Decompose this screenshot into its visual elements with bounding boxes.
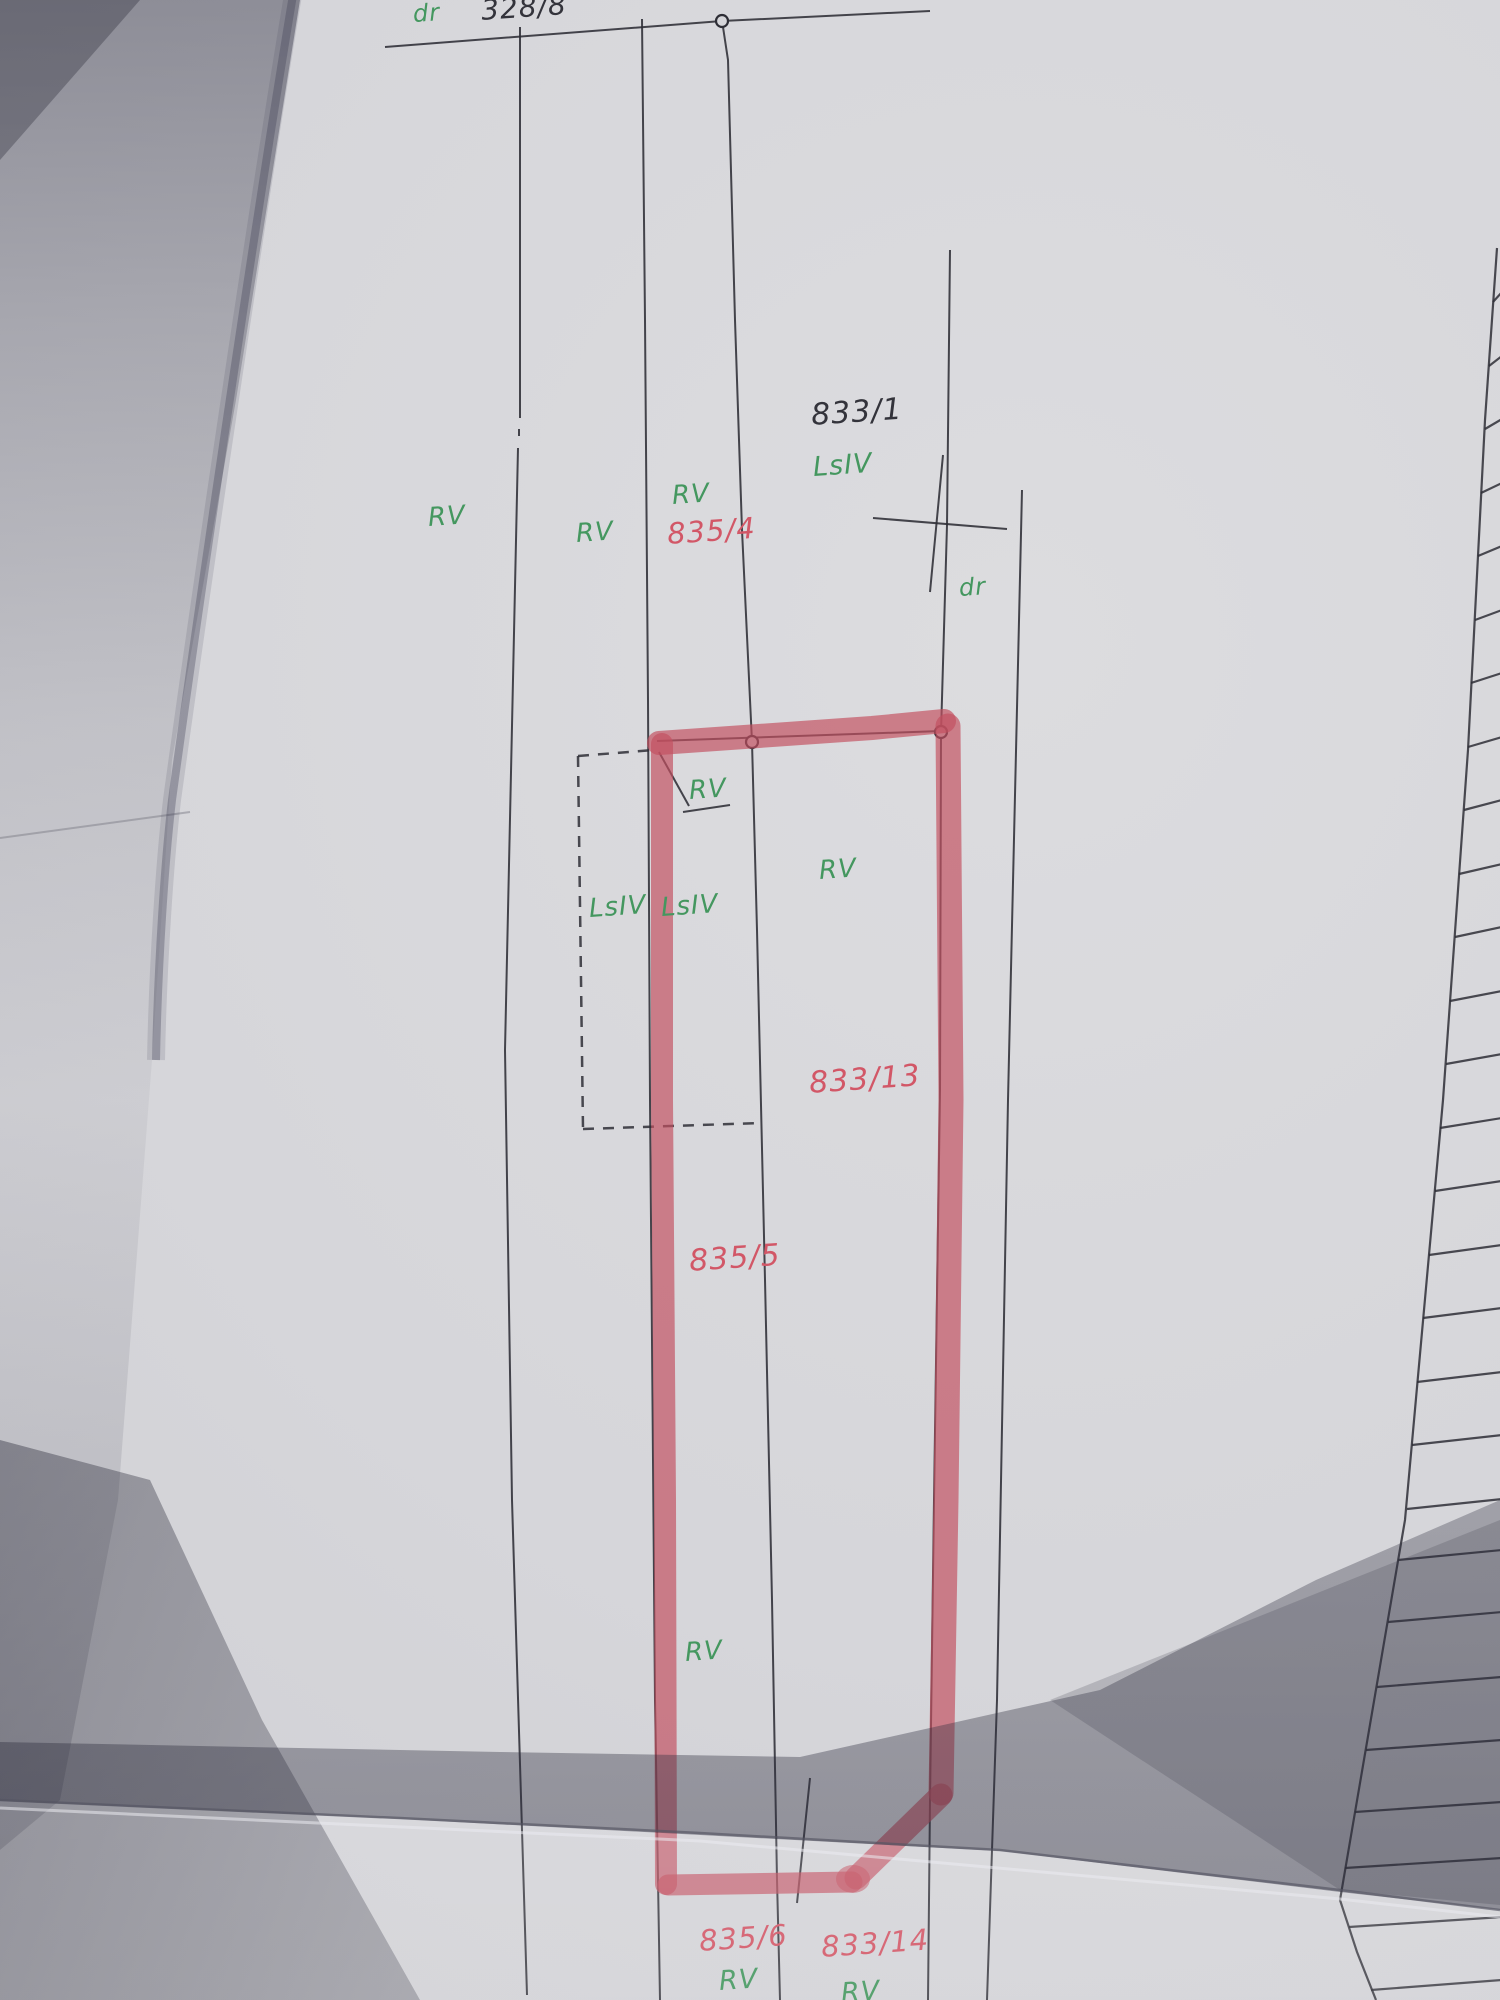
boundary-line-top xyxy=(385,11,930,47)
cast-shadow-streak xyxy=(156,0,293,1060)
ladder-rung xyxy=(1412,1435,1500,1445)
ladder-rung xyxy=(1429,1245,1500,1255)
parcel-label-833-1: 833/1 xyxy=(810,392,904,433)
parcel-boundary-lines xyxy=(505,19,1022,2000)
landuse-label-lsiv-left: LsIV xyxy=(588,890,647,924)
ladder-rung xyxy=(1459,864,1500,874)
parcel-label-833-13: 833/13 xyxy=(808,1058,922,1101)
marker-right-edge xyxy=(941,726,951,1793)
landuse-label-833-1: LsIV xyxy=(812,448,874,483)
boundary-cross-mark xyxy=(873,455,1007,592)
marker-top-edge xyxy=(659,721,944,743)
ladder-rung xyxy=(1366,1740,1500,1750)
ladder-rung xyxy=(1423,1308,1500,1318)
landuse-label-rv-mid: RV xyxy=(575,516,615,549)
dashed-boundary xyxy=(578,750,760,1129)
marker-bottom-edge xyxy=(668,1882,852,1885)
marker-blob xyxy=(836,1865,870,1893)
ladder-rung xyxy=(1398,1550,1500,1560)
ladder-rung xyxy=(1355,1802,1500,1812)
map-linework xyxy=(0,0,1500,2000)
left-edge-shadow xyxy=(0,0,1500,2000)
ladder-rung xyxy=(1471,673,1500,683)
parcel-label-328-8: 328/8 xyxy=(480,0,568,27)
bottom-left-shadow xyxy=(0,0,1500,2000)
landuse-label-rv-835-6: RV xyxy=(718,1963,759,1997)
ladder-rung xyxy=(1407,1499,1500,1509)
ladder-rung xyxy=(1481,483,1500,493)
parcel-label-835-6: 835/6 xyxy=(698,1918,789,1958)
below-fold-highlight xyxy=(0,0,1500,2000)
parcel-label-835-5: 835/5 xyxy=(688,1238,782,1279)
parcel-label-833-14: 833/14 xyxy=(820,1922,930,1963)
left-crease-line xyxy=(0,812,190,838)
survey-point-icons xyxy=(716,15,947,748)
ladder-rung xyxy=(1478,546,1500,556)
landuse-label-rv-833-14: RV xyxy=(840,1975,881,2000)
ladder-rung xyxy=(1489,356,1500,366)
ladder-rung xyxy=(1464,800,1500,810)
ladder-rung xyxy=(1349,1917,1500,1927)
parcel-label-835-4: 835/4 xyxy=(666,511,757,551)
road-label-top: dr xyxy=(412,0,441,28)
ladder-rung xyxy=(1493,292,1500,302)
fold-shadow-right xyxy=(0,0,1500,2000)
landuse-label-rv-833-13: RV xyxy=(818,853,858,886)
fold-creases xyxy=(0,0,1500,2000)
landuse-label-rv-835-4: RV xyxy=(671,478,711,511)
ladder-rung xyxy=(1475,610,1500,620)
ladder-rung xyxy=(1388,1612,1500,1622)
top-left-corner-shadow xyxy=(0,0,1500,2000)
cadastral-map-photo: dr 328/8 833/1 LsIV RV RV RV 835/4 dr RV… xyxy=(0,0,1500,2000)
ladder-rung xyxy=(1345,1858,1500,1868)
landuse-label-rv-835-5: RV xyxy=(684,1635,724,1668)
ladder-rung xyxy=(1455,927,1500,937)
ladder-border xyxy=(1340,248,1497,2000)
red-marker-outline xyxy=(0,0,1500,2000)
ladder-rung xyxy=(1377,1677,1500,1687)
ladder-rung xyxy=(1440,1118,1500,1128)
landuse-label-rv-pointer: RV xyxy=(688,773,728,806)
sheet-edge-ladder-grid xyxy=(1340,248,1500,2000)
boundary-tick-bottom xyxy=(797,1778,810,1903)
fold-crease-line xyxy=(0,1800,1500,1910)
ladder-rung xyxy=(1468,737,1500,747)
marker-diagonal xyxy=(856,1795,941,1878)
ladder-rung xyxy=(1371,1980,1500,1990)
landuse-label-lsiv-right: LsIV xyxy=(660,889,719,923)
ladder-rung xyxy=(1485,419,1500,429)
landuse-label-rv-left: RV xyxy=(427,500,467,533)
fold-shadow-band xyxy=(0,0,1500,2000)
ladder-rung xyxy=(1446,1054,1500,1064)
ladder-rung xyxy=(1417,1372,1500,1382)
ladder-rung xyxy=(1450,991,1500,1001)
ladder-rung xyxy=(1435,1181,1500,1191)
cast-shadow-streak-soft xyxy=(156,0,293,1060)
fold-crease-highlight xyxy=(0,1808,1500,1917)
boundary-line-835-top xyxy=(657,731,941,741)
road-label-right: dr xyxy=(958,572,987,602)
